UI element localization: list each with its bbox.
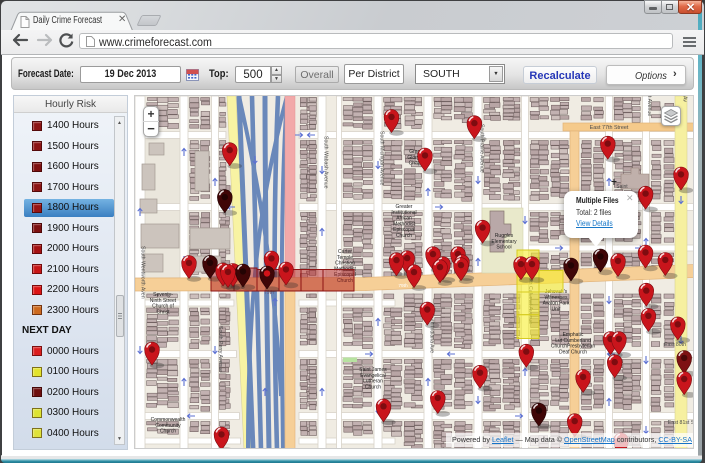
svg-text:Church: Church	[396, 233, 412, 239]
svg-text:East 81st S: East 81st S	[668, 420, 694, 426]
svg-text:Unit: Unit	[552, 306, 562, 312]
svg-text:Church: Church	[365, 384, 381, 390]
svg-text:t Avenue: t Avenue	[646, 96, 652, 116]
svg-text:South Michigan Avenue: South Michigan Avenue	[379, 131, 385, 186]
svg-text:Av: Av	[682, 96, 688, 102]
svg-text:East 77th Street: East 77th Street	[590, 125, 629, 131]
svg-text:Deaf Church: Deaf Church	[559, 349, 587, 355]
svg-text:School: School	[496, 245, 511, 251]
svg-text:South Wabash Avenue: South Wabash Avenue	[323, 136, 329, 189]
svg-text:South Perry Avenue: South Perry Avenue	[217, 326, 223, 372]
svg-text:Saint: Saint	[616, 184, 628, 190]
svg-text:South Wentworth Aven: South Wentworth Aven	[140, 246, 146, 299]
svg-text:Christ: Christ	[156, 309, 170, 315]
svg-text:Church: Church	[160, 429, 176, 435]
svg-text:79th: 79th	[398, 283, 408, 289]
